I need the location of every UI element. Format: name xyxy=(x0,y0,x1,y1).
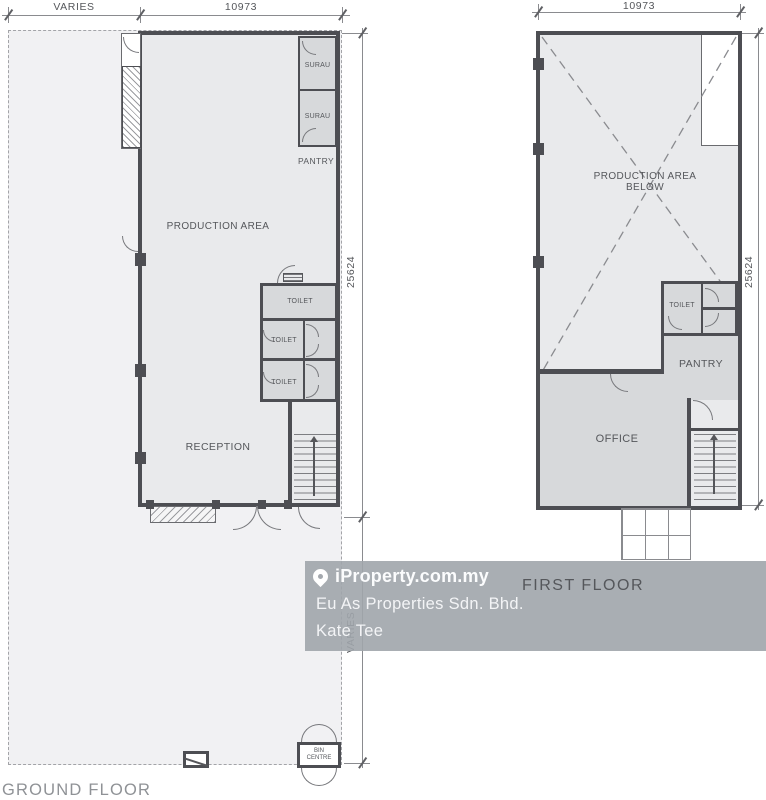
column-block xyxy=(135,364,146,377)
bin-centre-label-line2: CENTRE xyxy=(307,755,332,762)
gf-staircase xyxy=(294,434,336,500)
gf-dim-extension xyxy=(342,33,368,34)
gf-entrance-ramp-hatch xyxy=(150,506,216,523)
gf-toilet-partition xyxy=(260,318,338,321)
gf-right-dimension-line xyxy=(362,28,363,768)
ff-pantry-label: PANTRY xyxy=(663,358,739,370)
watermark-brand: iProperty.com.my xyxy=(335,566,489,587)
door-arc xyxy=(301,768,319,786)
ff-right-dimension-line xyxy=(758,28,759,510)
gf-loading-bay-hatch xyxy=(122,66,141,148)
ff-stair-up-arrow xyxy=(710,434,718,440)
column-block xyxy=(533,256,544,268)
gf-dim-extension xyxy=(344,517,370,518)
ff-void-edge-wall xyxy=(539,369,663,374)
wall-post xyxy=(284,500,292,509)
ff-canopy-grid xyxy=(621,508,691,560)
watermark-brand-row: iProperty.com.my xyxy=(313,566,489,587)
ff-production-below-line1: PRODUCTION AREA xyxy=(575,171,715,182)
ff-dim-10973: 10973 xyxy=(579,0,699,12)
surau-2-label: SURAU xyxy=(298,113,337,120)
watermark-agency: Eu As Properties Sdn. Bhd. xyxy=(316,595,524,614)
gf-toilet-partition xyxy=(260,358,338,361)
door-arc xyxy=(319,768,337,786)
ff-stair-top-wall xyxy=(690,428,738,431)
gf-top-dimension-line xyxy=(2,15,350,16)
ff-toilet-partition xyxy=(703,307,738,310)
gf-dim-10973: 10973 xyxy=(181,1,301,13)
location-pin-icon xyxy=(310,566,331,587)
gf-dim-extension xyxy=(344,763,370,764)
ff-production-below-label: PRODUCTION AREA BELOW xyxy=(575,171,715,193)
ff-stair-rail xyxy=(713,440,715,494)
ff-dim-25624: 25624 xyxy=(743,232,757,312)
gf-production-area-label: PRODUCTION AREA xyxy=(148,221,288,232)
column-block xyxy=(533,143,544,155)
wall-post xyxy=(212,500,220,509)
gf-reception-label: RECEPTION xyxy=(158,441,278,453)
gf-toilet-2-label: TOILET xyxy=(261,337,307,344)
gf-stair-up-arrow xyxy=(310,436,318,442)
floor-plan-canvas: VARIES 10973 SURAU SURAU PANTRY PRODUCTI… xyxy=(0,0,766,800)
ff-top-dimension-line xyxy=(532,12,746,13)
first-floor-title: FIRST FLOOR xyxy=(522,577,644,595)
ff-office-label: OFFICE xyxy=(557,433,677,445)
column-block xyxy=(135,253,146,266)
ground-floor-title: GROUND FLOOR xyxy=(2,781,151,800)
gf-dim-varies-top: VARIES xyxy=(14,1,134,13)
gf-toilet-partition xyxy=(303,320,305,400)
watermark-agent: Kate Tee xyxy=(316,622,383,641)
gf-bin-centre: BIN CENTRE xyxy=(297,742,341,768)
column-block xyxy=(533,58,544,70)
ff-production-below-line2: BELOW xyxy=(575,182,715,193)
gf-pantry-label: PANTRY xyxy=(286,156,346,166)
ff-dim-extension xyxy=(742,505,764,506)
gf-toilet-1-label: TOILET xyxy=(268,298,332,305)
ff-toilet-label: TOILET xyxy=(661,302,703,309)
ff-staircase xyxy=(694,434,736,500)
surau-1-label: SURAU xyxy=(298,62,337,69)
ff-dim-extension xyxy=(742,33,764,34)
gf-stair-rail xyxy=(313,442,315,496)
louvre-sill xyxy=(283,273,303,282)
bin-centre-label-line1: BIN xyxy=(314,748,324,755)
wall-post xyxy=(146,500,154,509)
gf-stair-wall xyxy=(288,402,292,504)
gf-toilet-3-label: TOILET xyxy=(261,379,307,386)
column-block xyxy=(135,452,146,464)
ff-stair-wall xyxy=(687,398,691,506)
gf-dim-25624: 25624 xyxy=(345,232,359,312)
